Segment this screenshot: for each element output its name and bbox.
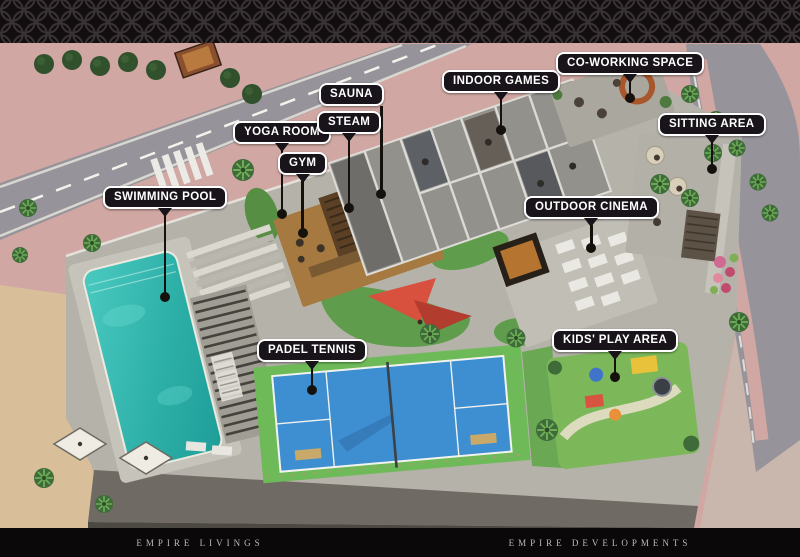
callout-leader-line (500, 99, 503, 126)
callout-dot (298, 228, 308, 238)
brand-empire-developments: EMPIRE DEVELOPMENTS (509, 538, 692, 548)
callout-leader-line (311, 368, 314, 386)
swimming-pool-label: SWIMMING POOL (103, 186, 227, 209)
padel-tennis-label: PADEL TENNIS (257, 339, 367, 362)
steam-label: STEAM (317, 111, 381, 134)
callout-leader-line (614, 358, 617, 373)
callout-dot (610, 372, 620, 382)
footer-left-half: EMPIRE LIVINGS (0, 538, 400, 548)
footer-band: EMPIRE LIVINGS EMPIRE DEVELOPMENTS (0, 528, 800, 557)
callout-leader-line (590, 225, 593, 244)
callout-padel-tennis: PADEL TENNIS (257, 339, 367, 395)
masterplan-image: SWIMMING POOL YOGA ROOM GYM SAUNA STEAM … (0, 0, 800, 557)
callout-dot (307, 385, 317, 395)
callout-kids-play-area: KIDS' PLAY AREA (552, 329, 678, 382)
callout-dot (586, 243, 596, 253)
callout-leader-line (711, 142, 714, 165)
callout-co-working-space: CO-WORKING SPACE (556, 52, 704, 103)
callout-swimming-pool: SWIMMING POOL (103, 186, 227, 302)
footer-right-half: EMPIRE DEVELOPMENTS (400, 538, 800, 548)
callout-indoor-games: INDOOR GAMES (442, 70, 560, 135)
callout-dot (160, 292, 170, 302)
sitting-area-label: SITTING AREA (658, 113, 766, 136)
outdoor-cinema-label: OUTDOOR CINEMA (524, 196, 659, 219)
callout-outdoor-cinema: OUTDOOR CINEMA (524, 196, 659, 253)
callout-dot (625, 93, 635, 103)
callout-sitting-area: SITTING AREA (658, 113, 766, 174)
callout-dot (344, 203, 354, 213)
callout-leader-line (164, 215, 167, 293)
co-working-space-label: CO-WORKING SPACE (556, 52, 704, 75)
callout-leader-line (301, 181, 304, 229)
callout-steam: STEAM (317, 111, 381, 213)
callout-leader-line (348, 140, 351, 204)
indoor-games-label: INDOOR GAMES (442, 70, 560, 93)
callout-dot (707, 164, 717, 174)
decorative-header-band (0, 0, 800, 43)
callout-dot (496, 125, 506, 135)
kids-play-area-label: KIDS' PLAY AREA (552, 329, 678, 352)
brand-empire-livings: EMPIRE LIVINGS (136, 538, 263, 548)
sauna-label: SAUNA (319, 83, 384, 106)
